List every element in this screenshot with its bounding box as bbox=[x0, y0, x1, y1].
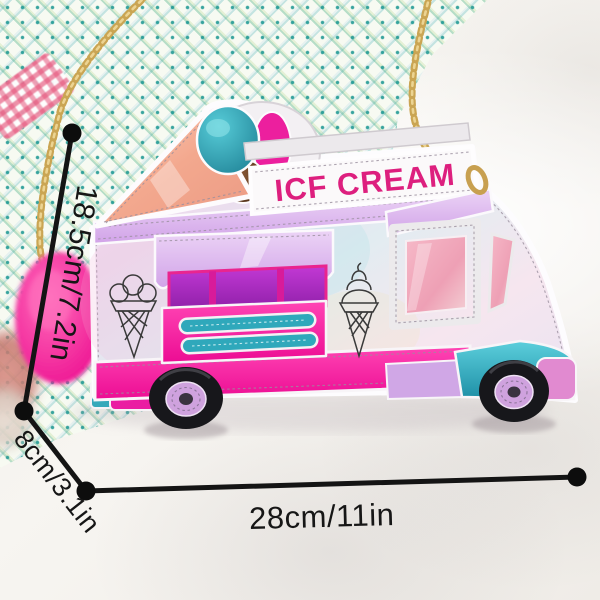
scene-art: ICF CREAM bbox=[0, 0, 600, 600]
front-wheel bbox=[479, 360, 549, 422]
ice-cream-truck-bag: ICF CREAM bbox=[80, 102, 576, 429]
scoop-highlight bbox=[206, 119, 230, 137]
width-dimension-line bbox=[86, 477, 577, 491]
counter-stripe bbox=[189, 340, 310, 346]
width-dimension-label: 28cm/11in bbox=[249, 497, 395, 536]
product-photo-scene: ICF CREAM bbox=[0, 0, 600, 600]
serving-window bbox=[155, 230, 333, 363]
counter-stripe bbox=[187, 320, 308, 326]
rear-wheel bbox=[149, 367, 223, 429]
depth-dimension-label: 8cm/3.1in bbox=[8, 424, 106, 538]
cab-step-panel bbox=[386, 360, 463, 399]
teal-scoop bbox=[197, 106, 259, 174]
